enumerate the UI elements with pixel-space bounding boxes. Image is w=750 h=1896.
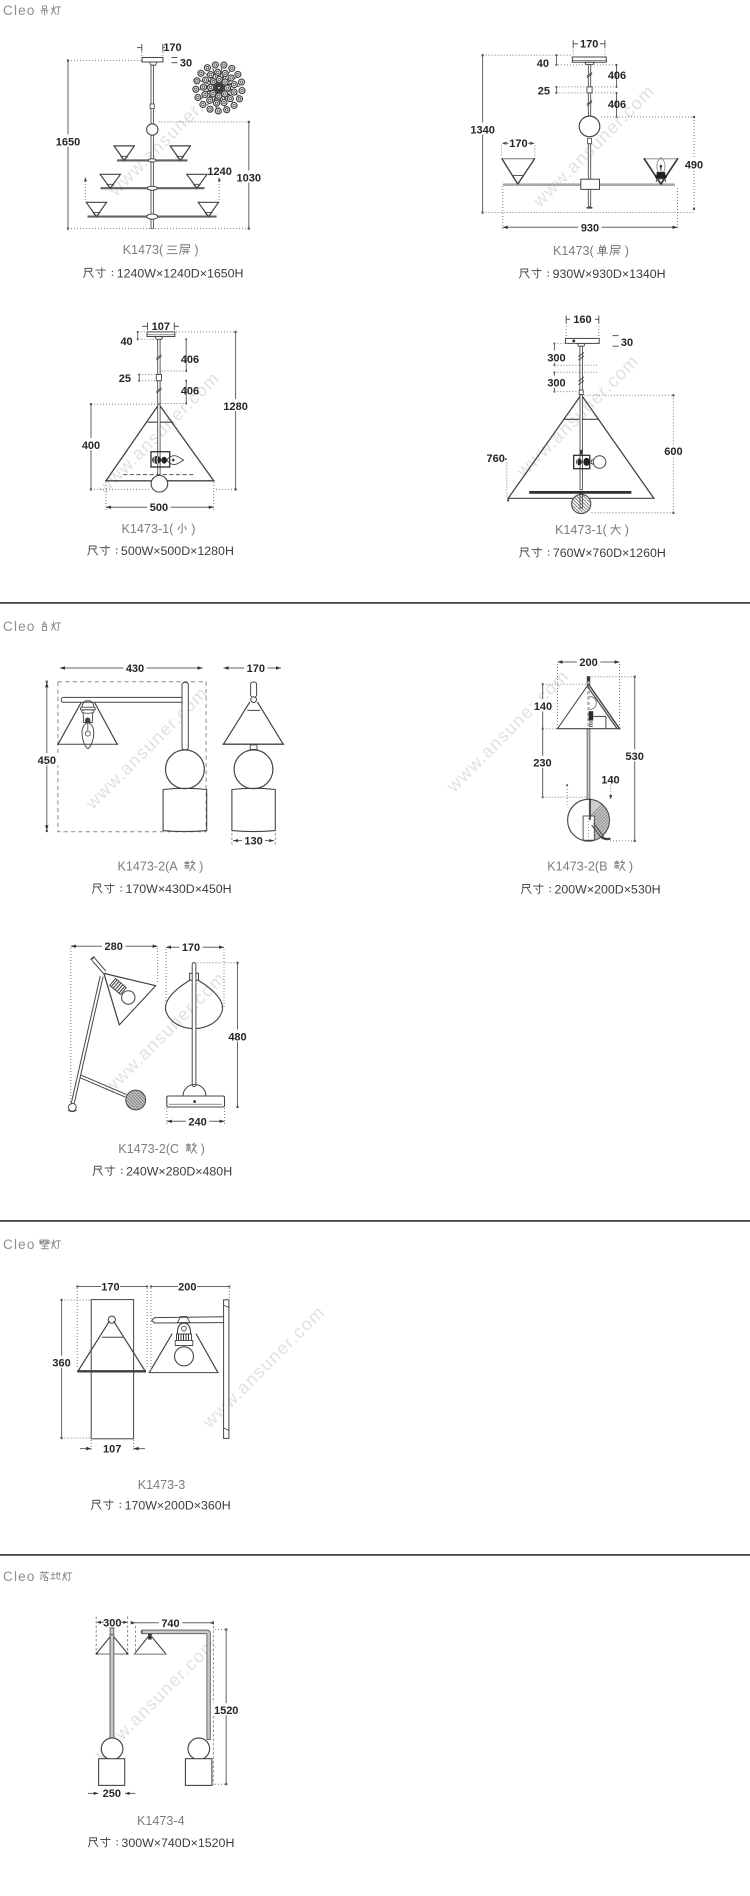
svg-text:K1473-3: K1473-3 [138, 1478, 186, 1492]
svg-text:K1473-4: K1473-4 [137, 1814, 185, 1828]
svg-text:Cleo: Cleo [3, 3, 36, 18]
svg-text:K1473-1(: K1473-1( [122, 522, 175, 536]
svg-text:1240: 1240 [207, 166, 231, 178]
svg-text:500: 500 [150, 502, 168, 514]
svg-text:25: 25 [119, 373, 131, 385]
svg-text:1030: 1030 [237, 172, 261, 184]
svg-text:K1473-2(C: K1473-2(C [118, 1142, 179, 1156]
svg-text:400: 400 [82, 440, 100, 452]
svg-text:430: 430 [126, 663, 144, 675]
svg-text:K1473(: K1473( [553, 244, 594, 258]
svg-text:140: 140 [601, 774, 619, 786]
svg-text:240W×280D×480H: 240W×280D×480H [126, 1164, 232, 1178]
svg-text:1650: 1650 [56, 136, 80, 148]
svg-text:170W×430D×450H: 170W×430D×450H [125, 882, 231, 896]
svg-text:www.ansuner.com: www.ansuner.com [442, 666, 573, 797]
svg-text:250: 250 [103, 1788, 121, 1800]
svg-text:): ) [201, 1142, 205, 1156]
svg-text:500W×500D×1280H: 500W×500D×1280H [121, 544, 234, 558]
svg-text:1280: 1280 [223, 401, 247, 413]
svg-text:170W×200D×360H: 170W×200D×360H [125, 1498, 231, 1512]
svg-text:160: 160 [573, 314, 591, 326]
svg-text:www.ansuner.com: www.ansuner.com [99, 968, 230, 1099]
svg-text:230: 230 [533, 758, 551, 770]
svg-text:25: 25 [538, 85, 550, 97]
svg-text:Cleo: Cleo [3, 1569, 36, 1584]
svg-text:40: 40 [537, 58, 549, 70]
svg-text:300: 300 [547, 352, 565, 364]
svg-text:930: 930 [581, 222, 599, 234]
svg-text:40: 40 [120, 336, 132, 348]
svg-text:130: 130 [244, 835, 262, 847]
svg-text:360: 360 [52, 1358, 70, 1370]
svg-text:450: 450 [38, 755, 56, 767]
svg-text:170: 170 [182, 942, 200, 954]
svg-text:): ) [199, 860, 203, 874]
svg-text:490: 490 [685, 159, 703, 171]
svg-text:1520: 1520 [214, 1705, 238, 1717]
svg-text:): ) [625, 523, 629, 537]
svg-text:Cleo: Cleo [3, 1237, 36, 1252]
svg-text:1240W×1240D×1650H: 1240W×1240D×1650H [117, 266, 244, 280]
svg-text:K1473(: K1473( [123, 243, 164, 257]
svg-text:760: 760 [487, 453, 505, 465]
svg-text:240: 240 [188, 1116, 206, 1128]
svg-text:): ) [194, 243, 198, 257]
svg-text:406: 406 [181, 354, 199, 366]
svg-text:170: 170 [509, 138, 527, 150]
svg-text:K1473-2(A: K1473-2(A [117, 860, 178, 874]
svg-text:K1473-1(: K1473-1( [555, 523, 608, 537]
svg-text:): ) [629, 859, 633, 873]
svg-text:300W×740D×1520H: 300W×740D×1520H [121, 1836, 234, 1850]
svg-text:107: 107 [152, 321, 170, 333]
svg-text:107: 107 [103, 1444, 121, 1456]
svg-text:406: 406 [608, 99, 626, 111]
svg-text:600: 600 [664, 446, 682, 458]
svg-text:K1473-2(B: K1473-2(B [547, 859, 607, 873]
svg-text:930W×930D×1340H: 930W×930D×1340H [553, 267, 666, 281]
svg-text:530: 530 [626, 751, 644, 763]
svg-text:170: 170 [247, 663, 265, 675]
svg-text:280: 280 [105, 941, 123, 953]
svg-text:30: 30 [621, 337, 633, 349]
svg-text:170: 170 [580, 38, 598, 50]
svg-text:200: 200 [178, 1282, 196, 1294]
svg-text:): ) [625, 244, 629, 258]
svg-text:): ) [191, 522, 195, 536]
svg-text:300: 300 [547, 377, 565, 389]
svg-text:www.ansuner.com: www.ansuner.com [198, 1302, 329, 1433]
svg-text:406: 406 [608, 70, 626, 82]
svg-text:1340: 1340 [470, 124, 494, 136]
svg-text:30: 30 [180, 57, 192, 69]
svg-text:170: 170 [163, 42, 181, 54]
svg-text:www.ansuner.com: www.ansuner.com [528, 81, 659, 212]
svg-text:300: 300 [103, 1617, 121, 1629]
svg-text:740: 740 [161, 1618, 179, 1630]
svg-text:406: 406 [181, 385, 199, 397]
svg-text:200W×200D×530H: 200W×200D×530H [554, 883, 660, 897]
svg-text:Cleo: Cleo [3, 619, 36, 634]
svg-text:170: 170 [101, 1282, 119, 1294]
svg-text:140: 140 [534, 701, 552, 713]
svg-text:480: 480 [228, 1031, 246, 1043]
svg-text:760W×760D×1260H: 760W×760D×1260H [553, 546, 666, 560]
svg-text:200: 200 [579, 657, 597, 669]
